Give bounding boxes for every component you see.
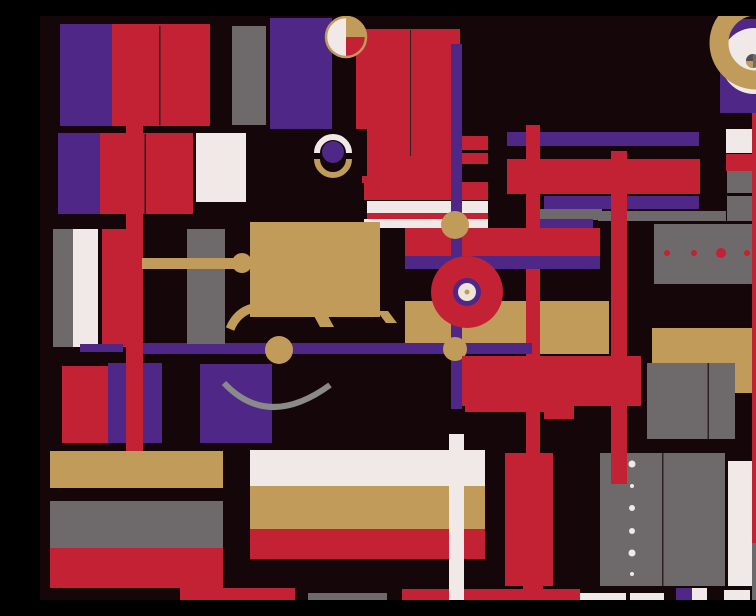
gray-column-mid: [187, 229, 225, 344]
red-vbar-far-right: [752, 113, 756, 543]
red-strip-between: [367, 213, 488, 219]
gray-strip-bottom: [308, 593, 387, 600]
red-strip-bottom-1: [180, 588, 295, 600]
white-column-left2: [196, 133, 246, 202]
red-rect-topleft: [112, 24, 210, 126]
small-red-rect-2: [462, 153, 488, 164]
red-block-low: [505, 453, 553, 586]
red-block-left2: [100, 133, 193, 214]
red-tab-low: [523, 584, 543, 589]
white-dot-5: [629, 550, 636, 557]
red-dot-3: [716, 248, 726, 258]
gray-rect-topleft: [232, 26, 266, 125]
purple-piece-bottom: [676, 588, 692, 600]
purple-strip-topright: [540, 219, 593, 228]
white-piece-bottom-2: [630, 593, 664, 600]
gold-rect-large: [250, 222, 380, 317]
gold-circle-on-vbar-top: [441, 211, 469, 239]
artwork-canvas: [40, 16, 756, 600]
white-piece-bottom-3: [692, 588, 707, 600]
red-step-mid: [362, 156, 460, 183]
red-vbar-right-center: [611, 151, 627, 484]
gray-pair-right-1: [647, 363, 708, 439]
gray-block-topright-1: [727, 171, 756, 193]
gray-column-left: [53, 229, 73, 347]
purple-hbar-center: [405, 256, 600, 269]
seam-red-big: [410, 30, 411, 156]
purple-hbar-long: [143, 343, 532, 354]
white-column-left: [73, 229, 98, 347]
gold-dot-center: [465, 290, 470, 295]
white-piece-bottom-4: [724, 590, 750, 600]
red-vbar-left-long: [126, 126, 143, 454]
gray-strip-topright-a: [540, 209, 602, 220]
purple-hbar-left-piece: [80, 344, 123, 352]
seam-red-left2: [145, 134, 147, 214]
gold-circle-on-hbar: [265, 336, 293, 364]
gold-bar-bottomleft: [50, 451, 223, 488]
red-piece-below: [544, 406, 574, 419]
purple-block-left2: [58, 133, 100, 214]
gray-pair-right-2: [708, 363, 735, 439]
white-dot-2: [630, 484, 634, 488]
gold-arm-knob: [232, 253, 252, 273]
red-column-left: [102, 229, 126, 347]
red-dot-4: [744, 250, 750, 256]
gray-below-red-vbar: [752, 543, 756, 600]
seam-gray-pair: [708, 363, 710, 439]
purple-column-top: [270, 18, 332, 129]
purple-rect-topleft: [60, 24, 112, 126]
abstract-composition: Abstract geometric composition — crimson…: [40, 16, 756, 600]
gray-bar-bottomleft: [50, 501, 223, 548]
white-rect-topright: [726, 129, 756, 153]
ring-purple-circle: [322, 141, 344, 163]
seam-gray-big: [662, 453, 664, 586]
red-step-low: [364, 182, 488, 200]
white-dot-1: [629, 461, 636, 468]
red-bar-bottomleft: [50, 548, 223, 588]
white-strip-lower: [364, 219, 488, 228]
red-hbar-topright: [726, 154, 756, 171]
red-dot-1: [664, 250, 670, 256]
white-vbar: [449, 434, 464, 600]
gray-big-rect-2: [663, 453, 725, 586]
red-field-center: [405, 228, 600, 256]
gray-block-topright-2: [727, 196, 756, 221]
small-red-rect-1: [462, 136, 488, 150]
white-dot-6: [630, 572, 634, 576]
red-strip-thin-mid: [465, 406, 544, 412]
seam-red-topleft: [159, 26, 161, 125]
white-piece-bottom-1: [580, 593, 626, 600]
white-dot-4: [629, 528, 635, 534]
red-square-bottomleft: [62, 366, 108, 443]
red-dot-2: [691, 250, 697, 256]
gold-arm-bar: [142, 258, 235, 269]
gray-big-rect-1: [600, 453, 662, 586]
white-dot-3: [629, 505, 635, 511]
white-column-right: [728, 461, 752, 586]
red-big-rect-top: [356, 29, 460, 159]
white-strip-upper: [367, 201, 488, 213]
red-strip-bottom-2: [402, 589, 580, 600]
